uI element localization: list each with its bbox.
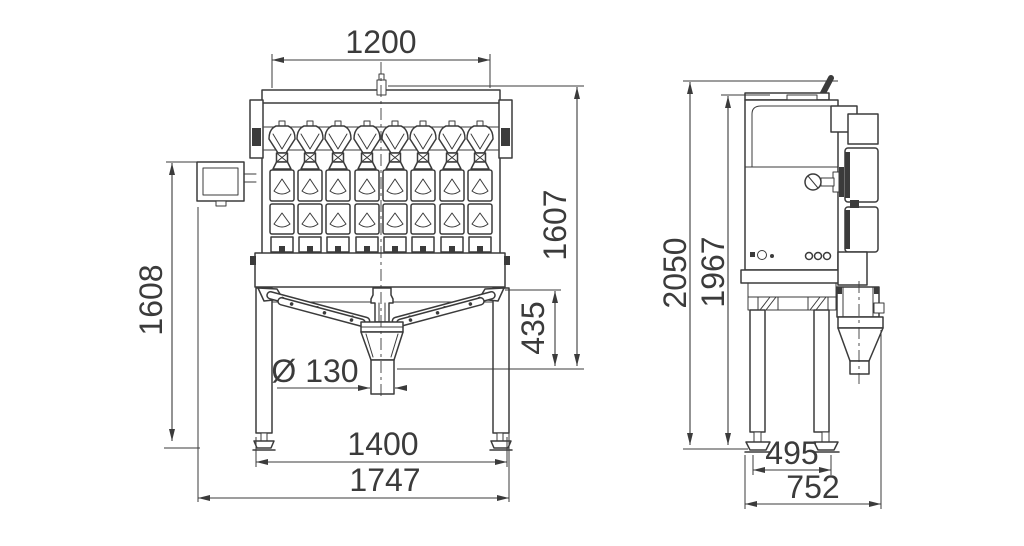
dim-leg-span-front: 1400 [256, 426, 507, 467]
side-sub-frame [748, 283, 836, 310]
dim-discharge-height-label: 435 [515, 301, 551, 354]
dim-total-height-label: 1607 [537, 189, 573, 260]
dim-discharge-height: 435 [505, 290, 561, 366]
dim-frame-height-label: 1967 [695, 236, 731, 307]
side-legs [745, 310, 839, 452]
side-funnel [837, 281, 884, 384]
dim-left-height: 1608 [133, 162, 200, 448]
dim-leg-span-side-label: 495 [765, 435, 818, 471]
dim-overall-width-label: 1747 [349, 462, 420, 498]
dim-top-width-label: 1200 [345, 24, 416, 60]
control-panel [197, 162, 256, 206]
technical-drawing: 1200 1607 435 1608 Ø 130 1400 [0, 0, 1024, 546]
dim-overall-height-label: 2050 [657, 237, 693, 308]
dim-leg-span-front-label: 1400 [347, 426, 418, 462]
dim-outlet-diameter-label: Ø 130 [271, 353, 358, 389]
dim-overall-depth-label: 752 [786, 469, 839, 505]
front-view [197, 62, 512, 450]
discharge-funnel [361, 288, 403, 394]
dim-left-height-label: 1608 [133, 264, 169, 335]
side-view [741, 78, 884, 452]
